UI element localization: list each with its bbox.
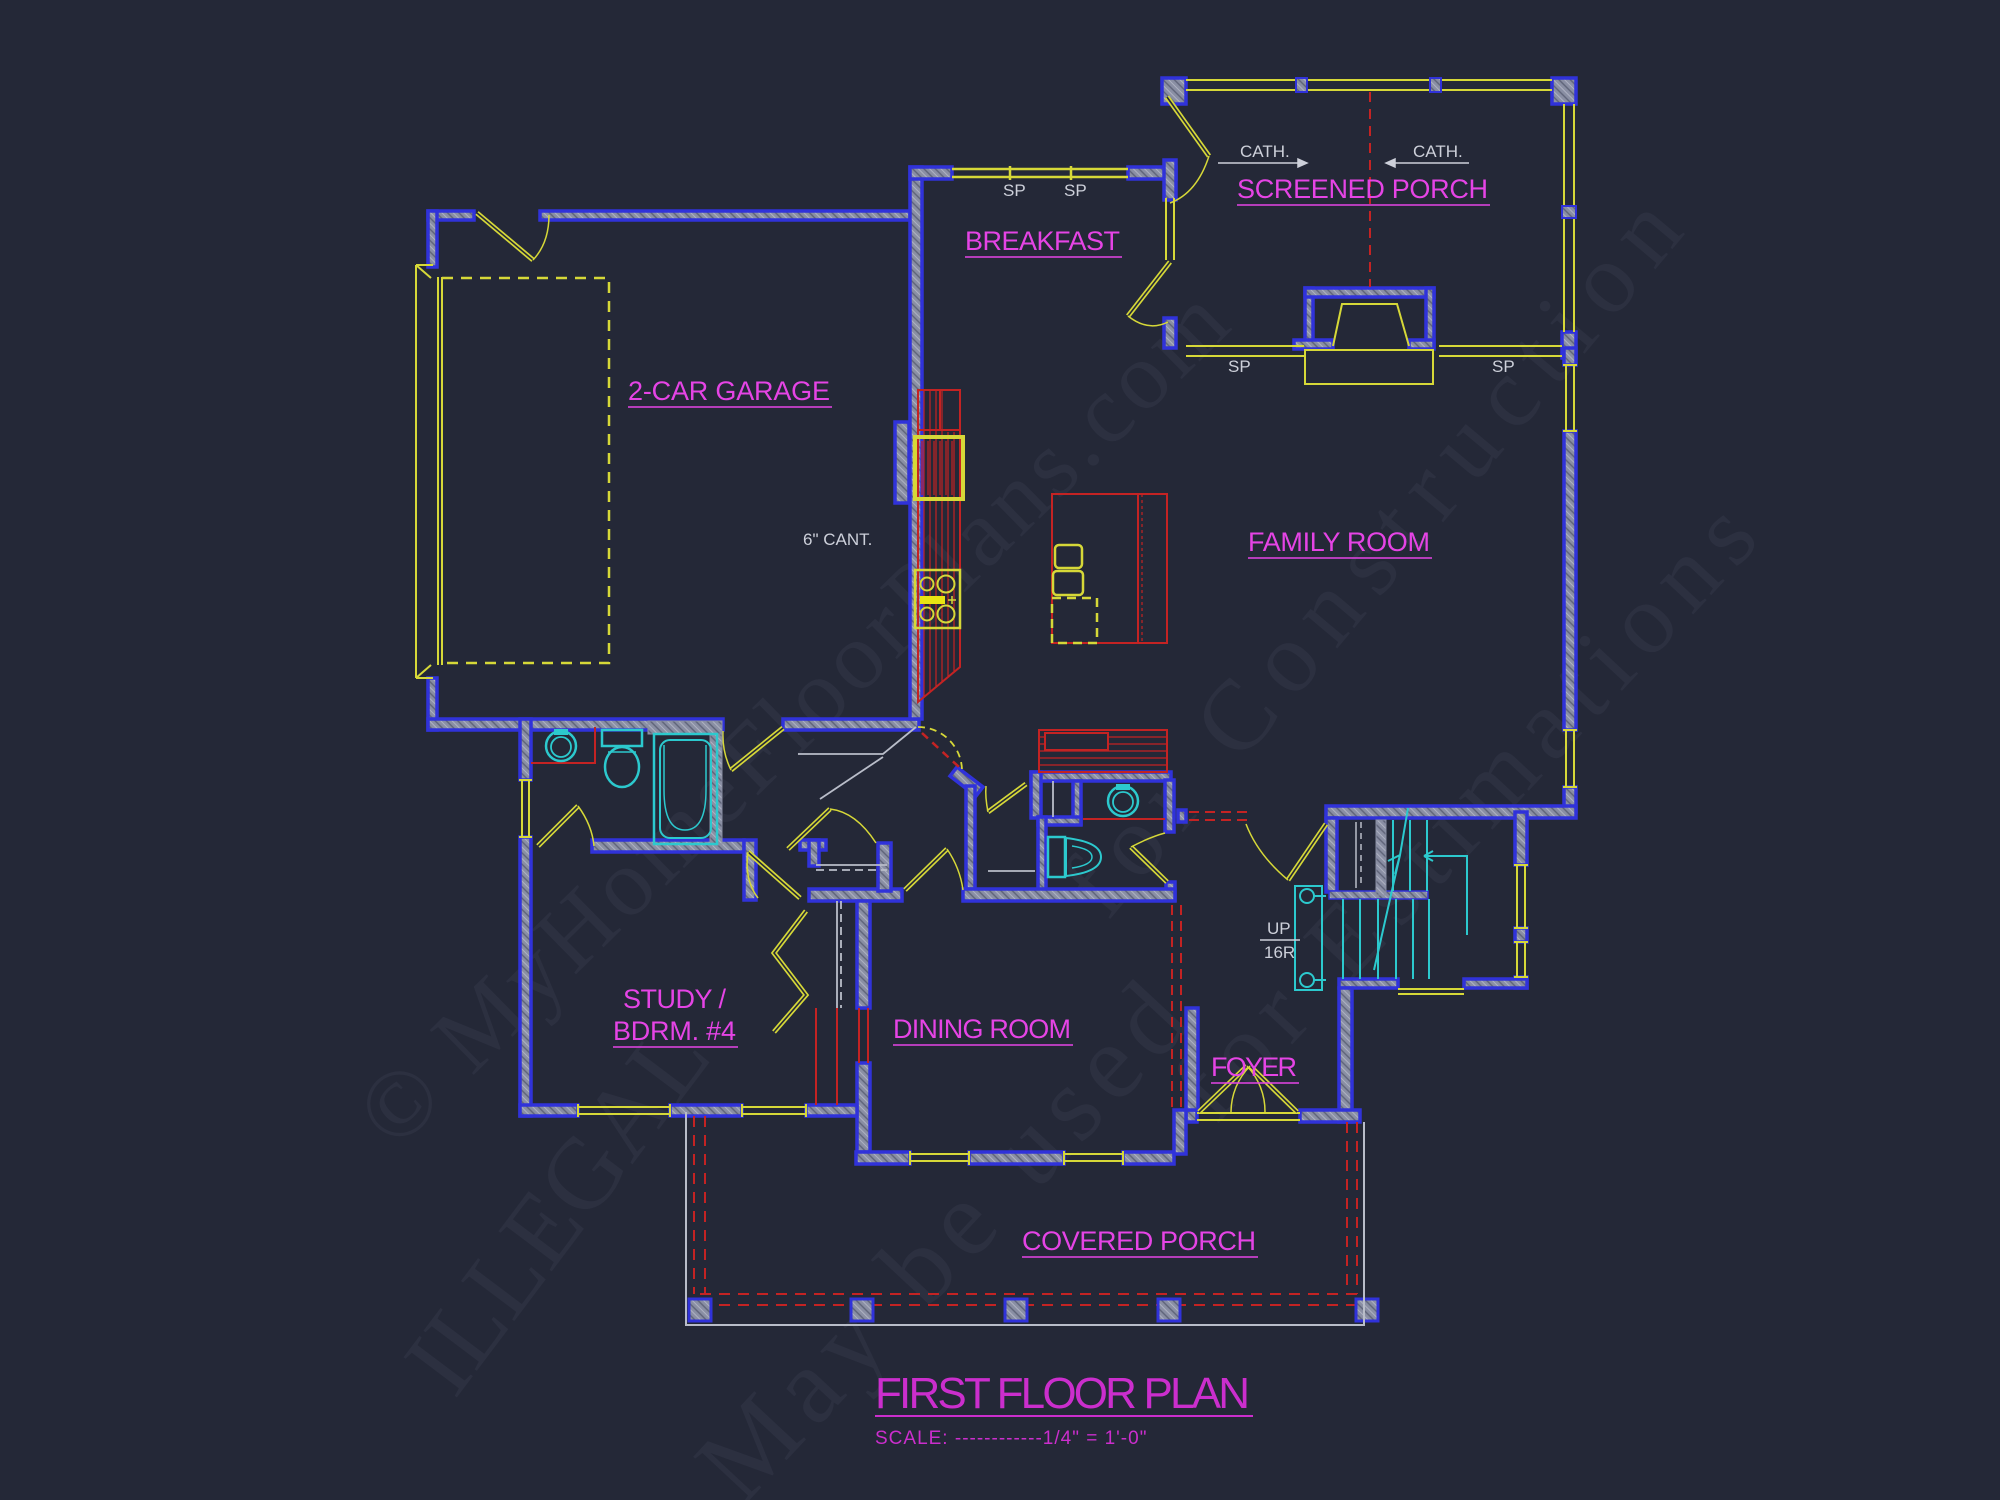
svg-text:COVERED PORCH: COVERED PORCH bbox=[1022, 1226, 1258, 1256]
svg-text:CATH.: CATH. bbox=[1240, 142, 1290, 161]
svg-text:BREAKFAST: BREAKFAST bbox=[965, 226, 1122, 256]
svg-text:SCALE: ------------1/4" = 1'-0: SCALE: ------------1/4" = 1'-0" bbox=[875, 1428, 1147, 1449]
svg-text:DINING ROOM: DINING ROOM bbox=[893, 1014, 1073, 1044]
svg-text:BDRM. #4: BDRM. #4 bbox=[613, 1016, 738, 1046]
svg-text:CATH.: CATH. bbox=[1413, 142, 1463, 161]
svg-text:FIRST FLOOR PLAN: FIRST FLOOR PLAN bbox=[875, 1369, 1253, 1418]
svg-text:SCREENED PORCH: SCREENED PORCH bbox=[1237, 174, 1490, 204]
svg-text:SP: SP bbox=[1492, 357, 1515, 376]
svg-text:UP: UP bbox=[1267, 919, 1291, 938]
svg-text:SP: SP bbox=[1003, 181, 1026, 200]
svg-text:SP: SP bbox=[1064, 181, 1087, 200]
svg-text:STUDY /: STUDY / bbox=[623, 984, 728, 1014]
svg-text:FAMILY ROOM: FAMILY ROOM bbox=[1248, 527, 1432, 557]
svg-text:2-CAR GARAGE: 2-CAR GARAGE bbox=[628, 376, 832, 406]
svg-text:SP: SP bbox=[1228, 357, 1251, 376]
svg-text:6" CANT.: 6" CANT. bbox=[803, 530, 872, 549]
svg-text:FOYER: FOYER bbox=[1211, 1052, 1299, 1082]
svg-text:16R: 16R bbox=[1264, 943, 1295, 962]
